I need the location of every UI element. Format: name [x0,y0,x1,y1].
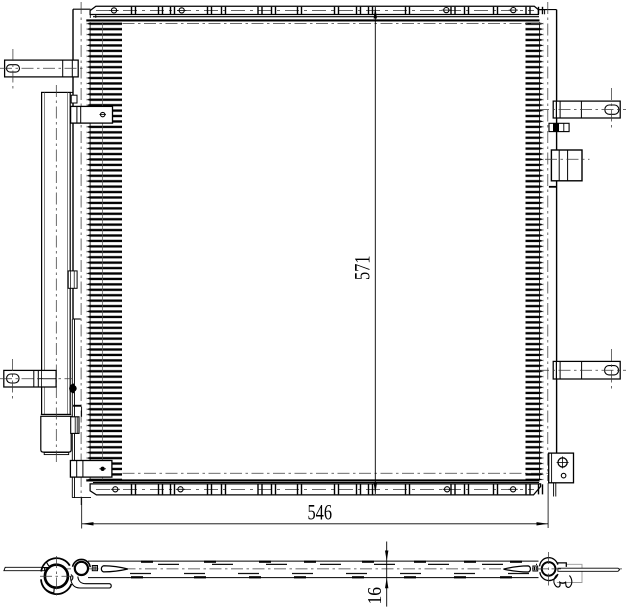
svg-text:16: 16 [364,587,386,605]
svg-text:546: 546 [308,500,333,525]
svg-text:571: 571 [350,256,375,281]
